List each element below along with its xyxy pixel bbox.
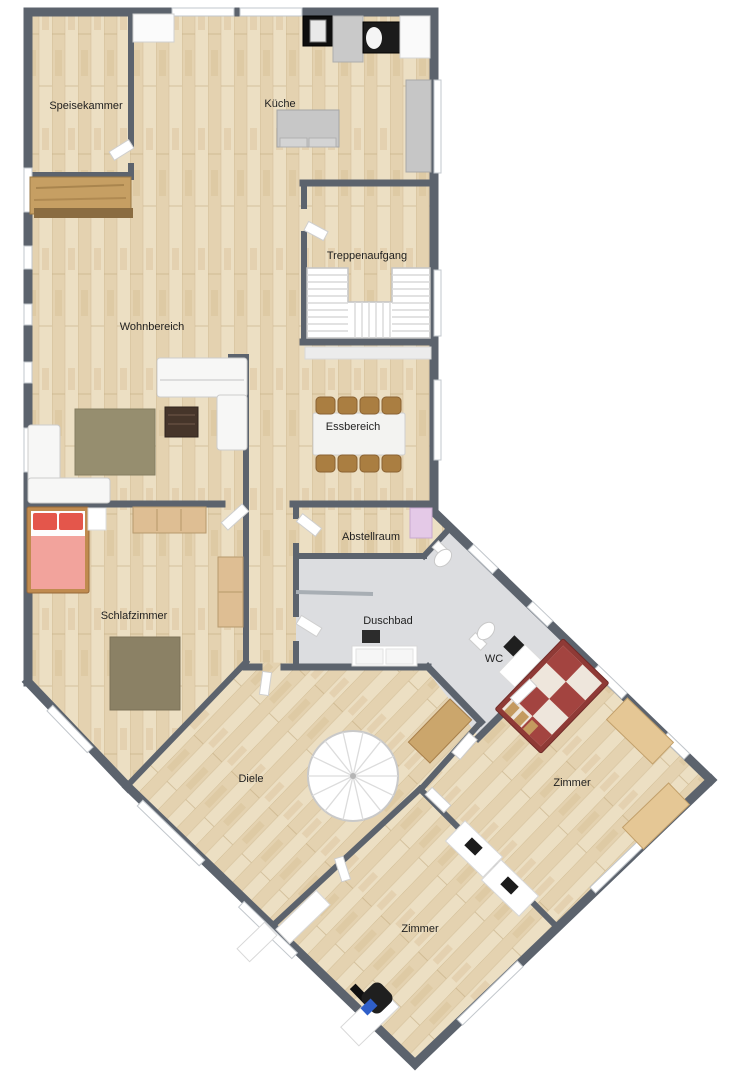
dining-chair-7 [360, 455, 379, 472]
sideboard-shadow [34, 208, 133, 218]
window-right-2 [434, 270, 441, 336]
dining-chair-5 [316, 455, 335, 472]
room-label-zimmer-rechts: Zimmer [553, 777, 591, 789]
floorplan: SpeisekammerKücheTreppenaufgangWohnberei… [0, 0, 732, 1080]
room-label-speisekammer: Speisekammer [49, 100, 123, 112]
sofa-corner-top [157, 358, 247, 397]
washbasin-1 [356, 649, 383, 664]
room-label-abstellraum: Abstellraum [342, 531, 400, 543]
bed-blanket [31, 536, 85, 589]
washbasin-2 [386, 649, 413, 664]
window-right-3 [434, 380, 441, 460]
wendeltreppe-pole [350, 773, 356, 779]
shower-partition [296, 592, 373, 594]
kitchen-side-counter [406, 80, 431, 172]
sofa-corner-right [217, 395, 247, 450]
rug-wohnbereich [75, 409, 155, 475]
dresser [133, 507, 206, 533]
island-drawer-1 [280, 138, 307, 147]
bed-pillow-2 [59, 513, 83, 530]
window-left-4 [24, 362, 32, 383]
dining-chair-3 [360, 397, 379, 414]
room-label-treppenaufgang: Treppenaufgang [327, 250, 407, 262]
room-label-wohnbereich: Wohnbereich [120, 321, 185, 333]
stove-door [310, 20, 326, 42]
kitchen-wall-cabinet [133, 14, 174, 42]
rug-schlafzimmer [110, 637, 180, 710]
coffee-table [165, 407, 198, 437]
sink-basin [366, 27, 382, 49]
window-left-2 [24, 246, 32, 269]
room-label-diele: Diele [238, 773, 263, 785]
window-right-1 [434, 80, 441, 173]
room-label-zimmer-unten: Zimmer [401, 923, 439, 935]
wendeltreppe [308, 731, 398, 821]
dining-chair-6 [338, 455, 357, 472]
dining-chair-2 [338, 397, 357, 414]
sofa-left-chaise [28, 478, 110, 503]
room-label-essbereich: Essbereich [326, 421, 380, 433]
room-label-wc: WC [485, 653, 503, 665]
floorplan-svg: SpeisekammerKücheTreppenaufgangWohnberei… [0, 0, 732, 1080]
shower-drain [362, 630, 380, 643]
treppe-sideboard [305, 347, 431, 359]
dining-chair-1 [316, 397, 335, 414]
nightstand [88, 508, 106, 530]
bed-pillow-1 [33, 513, 57, 530]
room-label-kueche: Küche [264, 98, 295, 110]
window-left-3 [24, 304, 32, 325]
dining-chair-4 [382, 397, 401, 414]
kitchen-counter [333, 16, 363, 62]
dining-chair-8 [382, 455, 401, 472]
room-label-schlafzimmer: Schlafzimmer [101, 610, 168, 622]
abstell-wardrobe-pink [410, 508, 432, 538]
room-label-duschbad: Duschbad [363, 615, 413, 627]
island-drawer-2 [309, 138, 336, 147]
kitchen-tall-cabinet [400, 16, 430, 58]
window-top-1 [172, 8, 234, 16]
window-top-2 [240, 8, 302, 16]
dining-table [313, 413, 405, 455]
